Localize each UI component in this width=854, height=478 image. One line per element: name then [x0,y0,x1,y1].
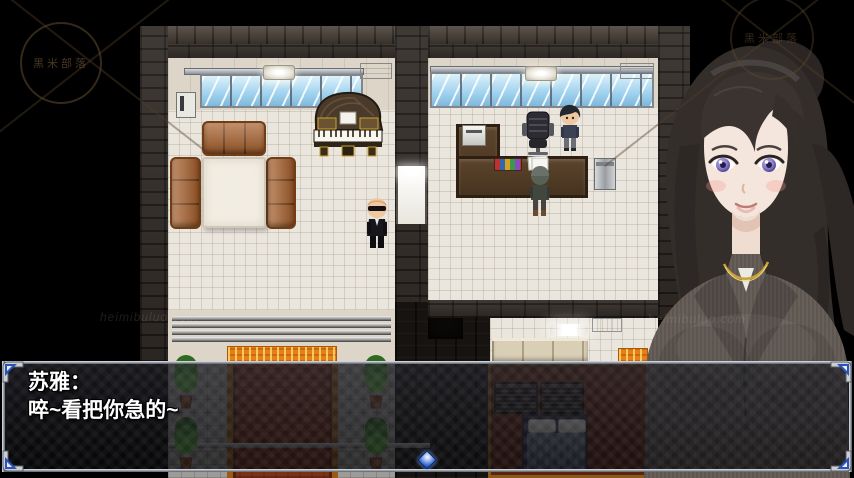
shutter-bar [172,330,391,335]
wall-phone[interactable] [176,92,196,118]
dialog-corner-icon [830,450,852,472]
game-screen[interactable]: 黑米部落 黑米部落 heimibuluo.com heimibuluo.com … [0,0,854,478]
dialog-line: 啐~看把你急的~ [28,397,179,425]
dialog-speaker-name: 苏雅： [28,369,179,397]
hallway-cabinets [492,338,588,362]
office-bottom-wall [428,300,658,318]
dialog-window[interactable]: 苏雅： 啐~看把你急的~ [2,361,852,472]
coffee-table [202,157,266,228]
dialog-corner-icon [830,361,852,383]
office-chair [522,110,554,156]
desk-books [494,158,522,171]
office-desk-horizontal[interactable] [456,156,588,198]
wall-left [140,26,168,362]
shutter-bar [172,316,391,321]
trash-bin [594,158,616,190]
dialog-border-top [2,361,852,364]
sofa-top [202,121,266,156]
shutter-bar [172,337,391,342]
printer[interactable] [462,125,486,146]
npc-black-hair[interactable] [558,104,582,152]
npc-at-desk[interactable] [527,158,553,218]
dialog-corner-icon [2,450,24,472]
sofa-right [266,157,296,229]
npc-bald-suit[interactable] [363,196,391,252]
sofa-left [170,157,201,229]
dialog-text-block: 苏雅： 啐~看把你急的~ [28,369,179,425]
hallway-heater [592,318,622,332]
doorway-light-icon [399,168,424,176]
shutter-bar [172,323,391,328]
continue-indicator-icon[interactable] [417,450,437,470]
wall-lamp-left-icon [263,65,295,80]
wall-lamp-right-icon [525,66,557,81]
air-conditioner-left [360,63,392,79]
fluorescent-light-icon [550,324,588,336]
dialog-corner-icon [2,361,24,383]
grand-piano[interactable] [310,90,386,158]
